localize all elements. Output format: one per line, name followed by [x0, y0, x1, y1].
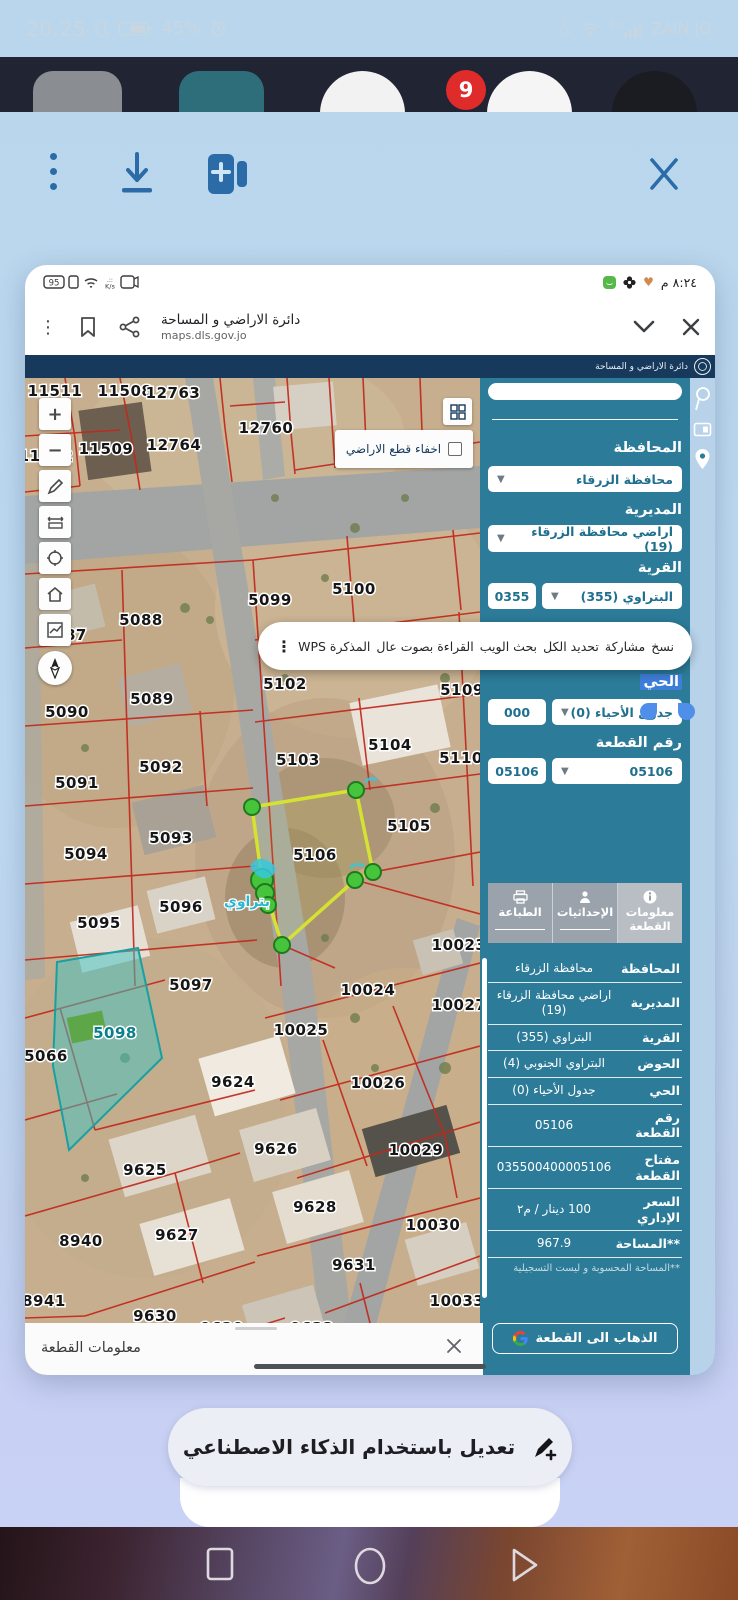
satellite-map-canvas: بتراوي 115111150812763127601150912764115…: [25, 378, 480, 1375]
android-status-icon: [603, 276, 616, 289]
directorate-label: المديرية: [488, 502, 682, 518]
village-select[interactable]: البتراوي (355)▼: [542, 583, 682, 609]
battery-percent: 45%: [161, 18, 201, 39]
parcel-label: 8940: [59, 1232, 103, 1250]
parcel-label: 9626: [254, 1140, 298, 1158]
parcel-label: 5088: [119, 611, 163, 629]
parcel-label: 10033: [430, 1292, 480, 1310]
home-icon: [46, 586, 64, 603]
chevron-down-icon: ▼: [551, 591, 559, 602]
tab-coordinates[interactable]: الإحداثيات: [553, 883, 618, 943]
inner-battery-percent: 95: [49, 279, 60, 289]
goto-parcel-button[interactable]: الذهاب الى القطعة: [492, 1323, 678, 1354]
site-header: دائرة الاراضي و المساحة: [25, 355, 715, 378]
governorate-label: المحافظة: [488, 440, 682, 456]
text-selection-handle[interactable]: [678, 703, 695, 720]
pencil-icon: [47, 478, 64, 495]
tab-parcel-info[interactable]: معلومات القطعة: [618, 883, 682, 943]
parcel-label: 10030: [406, 1216, 461, 1234]
home-button[interactable]: [352, 1547, 388, 1585]
download-icon[interactable]: [115, 148, 159, 200]
carrier-name: ZAIN JO: [651, 19, 712, 38]
parcel-label: 10027: [432, 996, 480, 1014]
measure-tool-button[interactable]: [39, 506, 71, 538]
site-header-title: دائرة الاراضي و المساحة: [595, 362, 688, 372]
bookmark-icon[interactable]: [79, 316, 97, 338]
info-row-value: 100 دينار / م٢: [490, 1202, 618, 1218]
image-card-icon[interactable]: [693, 422, 712, 437]
parcel-label: 10026: [351, 1074, 406, 1092]
page-url: maps.dls.gov.jo: [161, 329, 300, 343]
info-row-value: البتراوي (355): [490, 1030, 618, 1046]
text-selection-menu: نسخ مشاركة تحديد الكل بحث الويب القراءة …: [258, 622, 692, 670]
heart-status-icon: ♥: [643, 275, 654, 289]
home-extent-button[interactable]: [39, 578, 71, 610]
side-icon-strip: [690, 378, 715, 1375]
app-icon: [33, 71, 122, 112]
info-row-label: المديرية: [618, 995, 680, 1011]
parcel-label: 10023: [432, 936, 480, 954]
phone-screen: 20:25 45% 0 K/s 4G ZAIN JO 9: [0, 0, 738, 1600]
parcel-info-list: المحافظة محافظة الزرقاء المديرية اراضي م…: [488, 956, 682, 1274]
parcel-label: 5102: [263, 675, 307, 693]
info-row-value: محافظة الزرقاء: [490, 961, 618, 977]
parcel-label: 5105: [387, 817, 431, 835]
parcel-label: 12760: [239, 419, 294, 437]
ruler-icon: [46, 514, 65, 530]
app-icon: [487, 71, 572, 112]
selection-menu-item[interactable]: المذكرة WPS: [298, 639, 370, 654]
marker-label: بتراوي: [224, 894, 270, 911]
panel-tabs: معلومات القطعة الإحداثيات الطباعة: [488, 883, 682, 943]
app-icon: [179, 71, 264, 112]
more-options-icon[interactable]: [50, 153, 57, 190]
printer-icon: [513, 890, 528, 904]
panel-form: المحافظة محافظة الزرقاء▼ المديرية اراضي …: [480, 378, 690, 1375]
parcel-label: 11509: [79, 440, 134, 458]
parcel-label: 5096: [159, 898, 203, 916]
parcel-label: 5066: [25, 1047, 68, 1065]
divider: [492, 419, 678, 420]
parcel-label: 11508: [98, 382, 153, 400]
district-code-box[interactable]: 000: [488, 699, 546, 725]
parcel-label: 10024: [341, 981, 396, 999]
info-row-label: القرية: [618, 1030, 680, 1046]
text-selection-handle[interactable]: [640, 703, 657, 720]
grid-icon: [450, 404, 466, 420]
back-button[interactable]: [508, 1547, 542, 1583]
parcel-label: 5093: [149, 829, 193, 847]
parcel-label: 5095: [77, 914, 121, 932]
info-icon: [643, 890, 657, 904]
info-row: القرية البتراوي (355): [488, 1025, 682, 1052]
info-row-value: اراضي محافظة الزرقاء (19): [490, 988, 618, 1019]
inner-clock: ٨:٢٤ م: [661, 275, 697, 290]
info-row: مفتاح القطعة 035500400005106: [488, 1147, 682, 1189]
info-row-label: السعر الإداري: [618, 1194, 680, 1225]
info-row-label: المحافظة: [618, 961, 680, 977]
alarm-icon: [210, 20, 227, 37]
parcel-label: 5097: [169, 976, 213, 994]
tab-print[interactable]: الطباعة: [488, 883, 553, 943]
info-row: السعر الإداري 100 دينار / م٢: [488, 1189, 682, 1231]
parcel-label: 9624: [211, 1073, 255, 1091]
close-icon[interactable]: [644, 148, 684, 200]
notification-badge: 9: [446, 70, 486, 110]
location-pin-icon[interactable]: [693, 448, 712, 470]
share-icon[interactable]: [119, 316, 141, 338]
parcel-label: 5100: [332, 580, 376, 598]
inner-gesture-bar: [254, 1364, 486, 1369]
info-row-label: الحي: [618, 1083, 680, 1099]
status-bar: 20:25 45% 0 K/s 4G ZAIN JO: [0, 0, 738, 57]
parcel-label: 5106: [293, 846, 337, 864]
inner-status-left-icons: 95 .:: K/s: [43, 272, 171, 292]
search-panel: المحافظة محافظة الزرقاء▼ المديرية اراضي …: [480, 378, 715, 1375]
parcel-label: 12763: [146, 384, 201, 402]
wallpaper-strip: [0, 1527, 738, 1600]
ai-edit-button[interactable]: تعديل باستخدام الذكاء الاصطناعي: [168, 1408, 572, 1486]
info-row-value: 967.9: [490, 1236, 618, 1252]
parcel-label: 10025: [274, 1021, 329, 1039]
info-row-value: البتراوي الجنوبي (4): [490, 1056, 618, 1072]
browser-toolbar: ⋮ دائرة الاراضي و المساحة maps.dls.gov.j…: [25, 299, 715, 355]
close-tab-icon[interactable]: [681, 317, 701, 337]
parcel-map[interactable]: بتراوي 115111150812763127601150912764115…: [25, 378, 480, 1375]
parcel-label: 5110: [439, 749, 480, 767]
layers-edit-button[interactable]: [39, 614, 71, 646]
selection-menu-item[interactable]: مشاركة: [605, 639, 645, 654]
village-code-box[interactable]: 0355: [488, 583, 536, 609]
north-arrow-button[interactable]: [38, 651, 72, 685]
selection-menu-item[interactable]: نسخ: [651, 639, 674, 654]
scrolling-capture-icon[interactable]: [200, 148, 260, 200]
info-row-value: 035500400005106: [490, 1160, 618, 1176]
info-row: المحافظة محافظة الزرقاء: [488, 956, 682, 983]
ai-edit-label: تعديل باستخدام الذكاء الاصطناعي: [183, 1435, 515, 1459]
info-row: الحي جدول الأحياء (0): [488, 1078, 682, 1105]
page-title: دائرة الاراضي و المساحة: [161, 312, 300, 329]
google-icon: [513, 1331, 528, 1346]
governorate-select[interactable]: محافظة الزرقاء▼: [488, 466, 682, 492]
parcel-label: 5091: [55, 774, 99, 792]
info-row: الحوض البتراوي الجنوبي (4): [488, 1051, 682, 1078]
locate-tool-button[interactable]: [39, 542, 71, 574]
clock: 20:25: [26, 17, 86, 41]
wifi-icon: [580, 21, 600, 37]
panel-scrollbar[interactable]: [482, 958, 487, 1298]
net-speed: 0 K/s: [558, 19, 572, 39]
parcel-label: 5094: [64, 845, 108, 863]
background-app-row: 9: [0, 57, 738, 112]
hide-parcels-checkbox[interactable]: [448, 442, 462, 456]
parcel-code-box[interactable]: 05106: [488, 758, 546, 784]
battery-icon: [118, 21, 152, 37]
parcel-label: 5104: [368, 736, 412, 754]
chevron-down-icon: ▼: [497, 474, 505, 485]
parcel-label: 5090: [45, 703, 89, 721]
parcel-label: 9628: [293, 1198, 337, 1216]
parcel-number-label: رقم القطعة: [488, 735, 682, 751]
search-icon[interactable]: [693, 386, 712, 412]
app-icon: [612, 71, 697, 112]
site-logo-icon: [694, 358, 711, 375]
ai-pen-icon: [529, 1433, 557, 1461]
parcel-label: 12764: [147, 436, 202, 454]
selection-menu-item[interactable]: تحديد الكل: [543, 639, 599, 654]
inner-status-bar: 95 .:: K/s ♥ ٨:٢٤ م: [25, 265, 715, 299]
parcel-label: 5089: [130, 690, 174, 708]
info-row-value: 05106: [490, 1118, 618, 1134]
info-row-label: الحوض: [618, 1056, 680, 1072]
info-row: رقم القطعة 05106: [488, 1105, 682, 1147]
info-row-value: جدول الأحياء (0): [490, 1083, 618, 1099]
parcel-number-select[interactable]: 05106▼: [552, 758, 682, 784]
chevron-down-icon: ▼: [497, 533, 505, 544]
edit-chart-icon: [46, 621, 64, 639]
selection-menu-more-icon[interactable]: ⋮: [276, 637, 292, 656]
zoom-out-button[interactable]: −: [39, 434, 71, 466]
browser-menu-icon[interactable]: ⋮: [39, 317, 57, 338]
info-row-label: مفتاح القطعة: [618, 1152, 680, 1183]
district-label: الحي: [488, 674, 682, 690]
north-arrow-icon: [48, 657, 62, 679]
parcel-label: 5099: [248, 591, 292, 609]
chevron-down-icon: ▼: [561, 707, 569, 718]
page-title-block: دائرة الاراضي و المساحة maps.dls.gov.jo: [161, 312, 300, 343]
info-row-label: **المساحة: [618, 1236, 680, 1252]
parcel-label: 9627: [155, 1226, 199, 1244]
sheet-drag-handle[interactable]: [235, 1327, 277, 1330]
sheet-title: معلومات القطعة: [41, 1340, 141, 1356]
pinwheel-status-icon: [623, 276, 636, 289]
parcel-label: 5109: [440, 681, 480, 699]
sheet-close-icon[interactable]: [445, 1337, 463, 1355]
app-icon: [320, 71, 405, 112]
info-row: المديرية اراضي محافظة الزرقاء (19): [488, 983, 682, 1025]
hide-parcels-toggle[interactable]: اخفاء قطع الاراضي: [335, 430, 473, 468]
draw-tool-button[interactable]: [39, 470, 71, 502]
parcel-label: 5092: [139, 758, 183, 776]
parcel-label: 9625: [123, 1161, 167, 1179]
parcel-label: 5103: [276, 751, 320, 769]
panel-search-input[interactable]: [488, 383, 682, 400]
collapse-chevron-icon[interactable]: [633, 320, 655, 334]
info-row-label: رقم القطعة: [618, 1110, 680, 1141]
compass-icon: [46, 549, 64, 567]
selection-menu-item[interactable]: القراءة بصوت عال: [376, 639, 473, 654]
silent-moon-icon: [95, 21, 109, 37]
screenshot-preview-card[interactable]: 95 .:: K/s ♥ ٨:٢٤ م ⋮ دائرة الاراضي و ال…: [25, 265, 715, 1375]
coordinates-icon: [578, 890, 592, 904]
village-label: القرية: [488, 560, 682, 576]
basemap-grid-button[interactable]: [443, 398, 472, 425]
signal-bars-icon: 4G: [609, 20, 642, 38]
parcel-label: 9631: [332, 1256, 376, 1274]
selection-menu-item[interactable]: بحث الويب: [480, 639, 537, 654]
parcel-label: 10029: [389, 1141, 444, 1159]
info-row: **المساحة 967.9: [488, 1231, 682, 1258]
screenshot-editor-toolbar: [0, 140, 738, 212]
svg-text:K/s: K/s: [105, 283, 115, 291]
area-note: **المساحة المحسوبة و ليست التسجيلية: [488, 1258, 682, 1274]
parcel-label: 5098: [93, 1024, 137, 1042]
selected-text-highlight: الحي: [640, 674, 682, 690]
chevron-down-icon: ▼: [561, 766, 569, 777]
zoom-in-button[interactable]: +: [39, 398, 71, 430]
parcel-label: 8941: [25, 1292, 66, 1310]
district-select[interactable]: جدول الأحياء (0)▼: [552, 699, 682, 725]
hide-parcels-label: اخفاء قطع الاراضي: [346, 442, 441, 456]
recents-button[interactable]: [205, 1547, 237, 1581]
directorate-select[interactable]: اراضي محافظة الزرقاء (19)▼: [488, 525, 682, 552]
